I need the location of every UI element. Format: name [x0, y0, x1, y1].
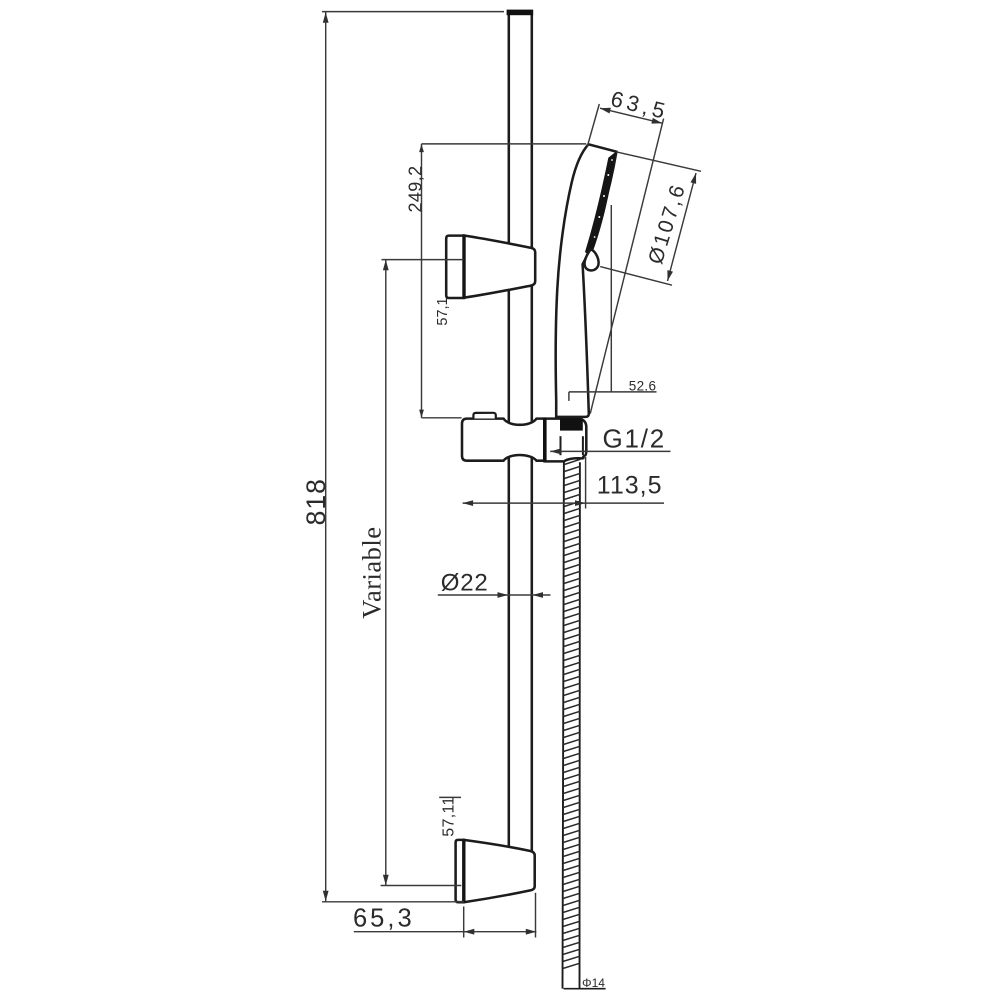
- svg-text:52.6: 52.6: [629, 379, 656, 394]
- svg-text:G1/2: G1/2: [603, 424, 667, 454]
- svg-text:57,1: 57,1: [435, 297, 451, 325]
- svg-text:Φ14: Φ14: [582, 976, 605, 990]
- svg-text:113,5: 113,5: [597, 472, 663, 500]
- svg-text:Ø22: Ø22: [441, 570, 489, 597]
- svg-text:57,11: 57,11: [441, 796, 458, 836]
- svg-text:249,2: 249,2: [405, 165, 425, 212]
- svg-text:65,3: 65,3: [353, 905, 415, 933]
- svg-text:Variable: Variable: [357, 526, 387, 618]
- svg-text:818: 818: [301, 478, 331, 525]
